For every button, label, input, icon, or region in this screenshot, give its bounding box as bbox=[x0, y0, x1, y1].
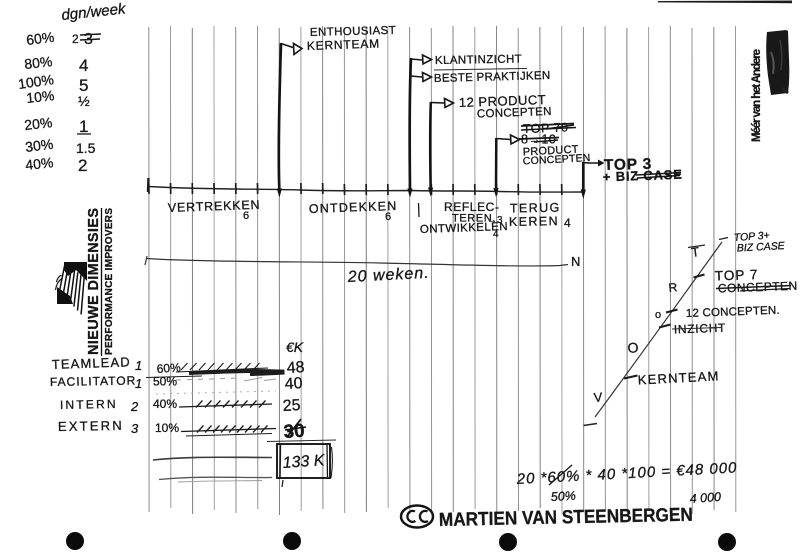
svg-text:50%: 50% bbox=[550, 489, 576, 504]
svg-text:EXTERN: EXTERN bbox=[58, 418, 124, 434]
svg-text:R: R bbox=[668, 280, 678, 295]
svg-text:4: 4 bbox=[79, 56, 88, 75]
svg-text:o: o bbox=[655, 309, 661, 321]
svg-text:30: 30 bbox=[283, 421, 306, 443]
svg-text:4 000: 4 000 bbox=[689, 490, 721, 506]
svg-text:10%: 10% bbox=[26, 87, 56, 106]
svg-text:25: 25 bbox=[282, 397, 301, 415]
svg-text:6: 6 bbox=[243, 210, 249, 222]
svg-text:10%: 10% bbox=[155, 421, 179, 435]
svg-text:½: ½ bbox=[78, 93, 90, 109]
svg-text:40%: 40% bbox=[153, 397, 177, 411]
svg-text:1.5: 1.5 bbox=[76, 140, 96, 156]
svg-text:KERNTEAM: KERNTEAM bbox=[307, 36, 381, 53]
svg-text:48: 48 bbox=[286, 359, 305, 377]
svg-text:6: 6 bbox=[385, 211, 391, 223]
svg-text:2: 2 bbox=[78, 156, 87, 175]
svg-text:30%: 30% bbox=[24, 136, 54, 155]
svg-text:Méér van het Andere: Méér van het Andere bbox=[751, 49, 763, 142]
svg-text:1: 1 bbox=[135, 358, 142, 373]
svg-text:50%: 50% bbox=[153, 375, 177, 389]
svg-text:INTERN: INTERN bbox=[60, 397, 118, 412]
svg-text:133 K: 133 K bbox=[282, 452, 326, 472]
svg-text:KEREN: KEREN bbox=[509, 214, 559, 229]
svg-text:O: O bbox=[627, 339, 639, 356]
svg-text:V: V bbox=[593, 389, 603, 405]
svg-text:3: 3 bbox=[131, 421, 139, 436]
svg-text:40: 40 bbox=[284, 375, 303, 393]
svg-text:2: 2 bbox=[72, 32, 79, 46]
svg-text:PERFORMANCE IMPROVERS: PERFORMANCE IMPROVERS bbox=[104, 208, 115, 355]
svg-text:N: N bbox=[571, 254, 580, 269]
svg-text:20%: 20% bbox=[24, 114, 54, 133]
svg-text:KLANTINZICHT: KLANTINZICHT bbox=[435, 53, 522, 67]
svg-text:FACILITATOR: FACILITATOR bbox=[50, 373, 137, 389]
svg-text:2: 2 bbox=[130, 399, 139, 414]
svg-text:TEAMLEAD: TEAMLEAD bbox=[52, 354, 131, 372]
svg-text:4: 4 bbox=[493, 229, 499, 240]
svg-text:40%: 40% bbox=[25, 154, 55, 173]
svg-text:1: 1 bbox=[79, 117, 88, 136]
svg-text:60%: 60% bbox=[25, 29, 55, 48]
svg-text:4: 4 bbox=[564, 216, 571, 230]
svg-text:BIZ CASE: BIZ CASE bbox=[737, 240, 786, 255]
svg-text:80%: 80% bbox=[24, 53, 54, 72]
svg-text:1: 1 bbox=[135, 376, 142, 391]
svg-text:€K: €K bbox=[286, 339, 304, 355]
svg-text:NIEUWE DIMENSIES: NIEUWE DIMENSIES bbox=[86, 208, 102, 355]
